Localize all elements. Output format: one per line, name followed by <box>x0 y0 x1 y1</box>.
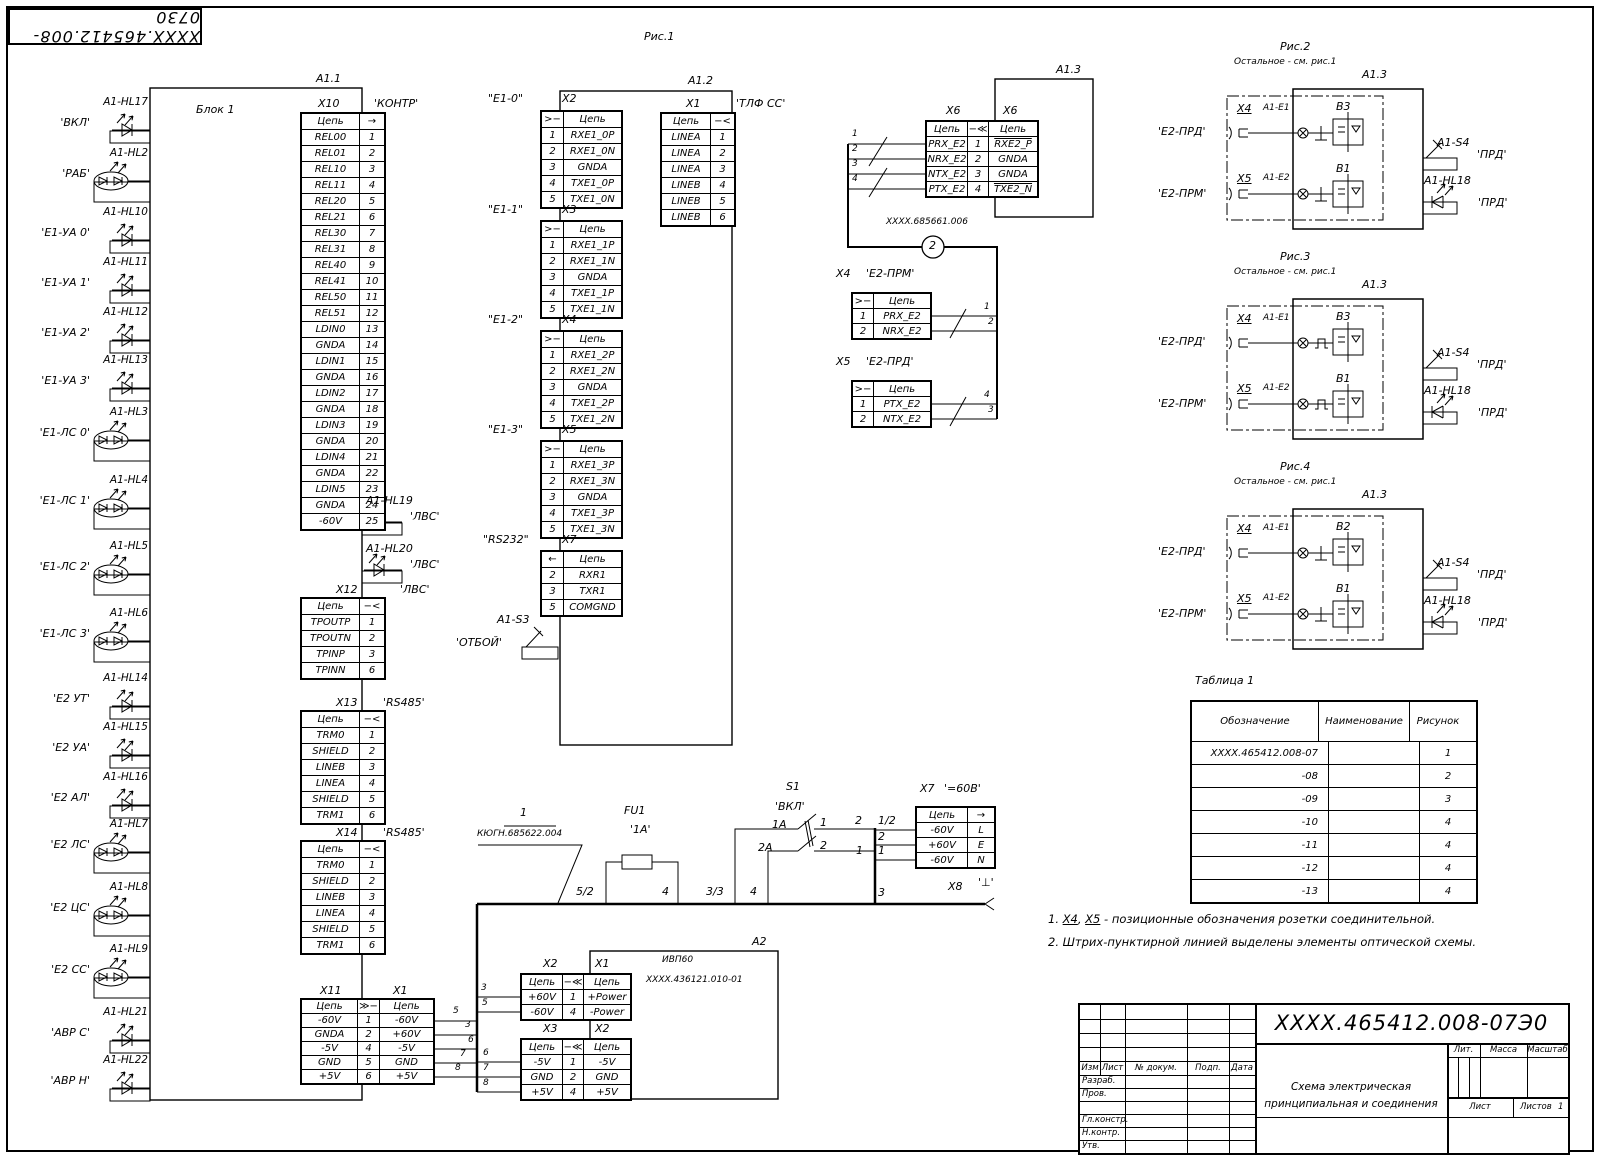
label-wires-bus-fu_out: 4 <box>662 885 669 898</box>
table-cell <box>1329 857 1420 879</box>
table-cell: 5 <box>358 1056 380 1069</box>
table-cell: −< <box>360 842 384 857</box>
table-row: LDIN217 <box>302 386 384 402</box>
table-row: >−Цепь <box>542 222 621 238</box>
table-cell: 2 <box>853 412 874 426</box>
fig2-b_bot: B1 <box>1336 162 1351 175</box>
table-row: Цепь≫−Цепь <box>302 1000 433 1014</box>
table-cell: REL00 <box>302 130 360 145</box>
table-cell: -60V <box>522 1005 563 1019</box>
label-right_leds-0-designator: A1-HL19 <box>366 494 413 507</box>
table-cell <box>1329 742 1420 764</box>
fig3-s4: A1-S4 <box>1437 346 1469 359</box>
label-tables-rs232-tag: "RS232" <box>483 533 529 546</box>
table-cell: E <box>968 838 994 852</box>
table-cell: ≫− <box>358 1000 380 1013</box>
table-row: 2RXE1_2N <box>542 364 621 380</box>
table-cell: RXR1 <box>564 568 621 583</box>
tb-listov-label: Листов <box>1520 1102 1552 1112</box>
table-row: Цепь→ <box>917 808 994 823</box>
table-cell: -08 <box>1192 765 1329 787</box>
table-cell: 4 <box>360 776 384 791</box>
indicator-designator: A1-HL7 <box>92 818 148 830</box>
table-row: 5TXE1_3N <box>542 522 621 537</box>
table-row: 1RXE1_1P <box>542 238 621 254</box>
table-row: -60VN <box>917 853 994 867</box>
label-wires-bus-n_left: 1 <box>856 844 863 857</box>
table-cell: 2 <box>358 1028 380 1041</box>
table-cell: 5 <box>542 522 564 537</box>
table-cell: 12 <box>360 306 384 321</box>
table-cell: -11 <box>1192 834 1329 856</box>
fig3-in_top: 'Е2-ПРД' <box>1158 335 1205 348</box>
table-cell: REL10 <box>302 162 360 177</box>
fig4-b_top: B2 <box>1336 520 1351 533</box>
table-cell: GNDA <box>302 370 360 385</box>
table-cell: 2 <box>563 1070 584 1084</box>
indicator-label: 'Е1-ЛС 0' <box>2 426 90 439</box>
table-row: GNDA22 <box>302 466 384 482</box>
table-cell: +Power <box>584 990 630 1004</box>
power-wires <box>433 814 994 1092</box>
table-row: REL216 <box>302 210 384 226</box>
table-row: >−Цепь <box>853 294 930 309</box>
table-x7-rs232: ←Цепь2RXR13TXR15COMGND <box>540 550 623 617</box>
table-cell: >− <box>542 222 564 237</box>
label-wires-x6-3: 4 <box>852 174 858 184</box>
table-cell: 5 <box>542 302 564 317</box>
table-cell: -60V <box>302 514 360 529</box>
table-cell: 2 <box>360 146 384 161</box>
table-row: TRM16 <box>302 938 384 953</box>
table-cell: LINEB <box>662 178 711 193</box>
table-x5-e2-prd: >−Цепь1PTX_E22NTX_E2 <box>851 380 932 428</box>
table-cell: GND <box>522 1070 563 1084</box>
indicator-label: 'Е2 СС' <box>2 963 90 976</box>
table-row: LINEA2 <box>662 146 734 162</box>
table-cell: SHIELD <box>302 874 360 889</box>
table-cell: 1 <box>563 1055 584 1069</box>
indicator-label: 'Е1-УА 0' <box>2 226 90 239</box>
label-x8-tag: '⊥' <box>978 876 994 889</box>
table-cell: GNDA <box>302 1028 358 1041</box>
indicator-designator: A1-HL13 <box>92 354 148 366</box>
table-row: -114 <box>1192 834 1476 857</box>
schematic-graphics <box>0 0 1600 1158</box>
table-row: LINEB6 <box>662 210 734 225</box>
indicator-label: 'ВКЛ' <box>2 116 90 129</box>
table-cell: LINEA <box>302 776 360 791</box>
indicator-label: 'АВР Н' <box>2 1074 90 1087</box>
table-cell: REL31 <box>302 242 360 257</box>
table-x6-x6: Цепь−≪ЦепьPRX_E21RXE2_PNRX_E22GNDANTX_E2… <box>925 120 1039 198</box>
table-cell: +5V <box>302 1070 358 1083</box>
table-cell: 2 <box>542 144 564 159</box>
table-row: 2RXE1_3N <box>542 474 621 490</box>
indicator-label: 'Е1-ЛС 3' <box>2 627 90 640</box>
table-row: 2RXE1_1N <box>542 254 621 270</box>
table-row: SHIELD2 <box>302 874 384 890</box>
label-wires-bus-n_right: 1 <box>878 844 885 857</box>
sheet-frame <box>7 7 1593 1151</box>
table-row: 4TXE1_2P <box>542 396 621 412</box>
table-cell: 2 <box>968 152 989 166</box>
table-row: LDIN421 <box>302 450 384 466</box>
table-cell: 1 <box>542 348 564 363</box>
fig4-title: Рис.4 <box>1280 460 1310 473</box>
table-cell: 3 <box>1420 788 1476 810</box>
table-row: GNDA18 <box>302 402 384 418</box>
table-row: Цепь→ <box>302 114 384 130</box>
label-tables-x6-des: X6 <box>946 104 961 117</box>
label-tables-e2prd-des: X5 <box>836 355 851 368</box>
table-cell: GNDA <box>989 167 1037 181</box>
label-blocks-a11-ref: A1.1 <box>316 72 341 85</box>
fig3-subtitle: Остальное - см. рис.1 <box>1234 267 1336 277</box>
table-cell: GNDA <box>302 466 360 481</box>
table-cell: COMGND <box>564 600 621 615</box>
table-cell: L <box>968 823 994 837</box>
fig2-hl18: A1-HL18 <box>1424 174 1471 187</box>
table-cell: 2 <box>542 254 564 269</box>
table-cell: 4 <box>542 286 564 301</box>
table-cell: GND <box>584 1070 630 1084</box>
table-cell: N <box>968 853 994 867</box>
table-cell: 4 <box>542 506 564 521</box>
table-cell: RXE1_3N <box>564 474 621 489</box>
table-row: 4TXE1_3P <box>542 506 621 522</box>
tb-col-ndoc: № докум. <box>1125 1063 1187 1073</box>
table-row: +60V1+Power <box>522 990 630 1005</box>
table-x7-60v: Цепь→-60VL+60VE-60VN <box>915 806 996 869</box>
table-cell: 3 <box>542 160 564 175</box>
table-cell: 3 <box>542 270 564 285</box>
indicator-designator: A1-HL9 <box>92 943 148 955</box>
led-a1-hl5 <box>94 555 150 595</box>
table-row: Цепь−< <box>662 114 734 130</box>
table-row: 5TXE1_1N <box>542 302 621 317</box>
table-cell: 2 <box>542 364 564 379</box>
indicator-designator: A1-HL21 <box>92 1006 148 1018</box>
label-tables-x7pwr-tag: '=60В' <box>944 782 981 795</box>
table-row: REL4110 <box>302 274 384 290</box>
table-row: PRX_E21RXE2_P <box>927 137 1037 152</box>
table-cell: SHIELD <box>302 744 360 759</box>
led-a1-hl3 <box>94 421 150 461</box>
label-wires-x11_right-3: 7 <box>483 1063 489 1073</box>
label-wires-bus-l_left: 2 <box>855 814 862 827</box>
indicator-label: 'Е1-УА 3' <box>2 374 90 387</box>
table-cell: TXE2_N <box>989 182 1037 196</box>
table-row: -082 <box>1192 765 1476 788</box>
table-row: Цепь−< <box>302 599 384 615</box>
led-a1-hl4 <box>94 489 150 529</box>
table-row: LDIN115 <box>302 354 384 370</box>
table-cell: ХХХХ.465412.008-07 <box>1192 742 1329 764</box>
tb-row-nkontr: Н.контр. <box>1082 1128 1120 1138</box>
fig4-in_top: 'Е2-ПРД' <box>1158 545 1205 558</box>
table-row: -134 <box>1192 880 1476 902</box>
table-cell: Цепь <box>302 842 360 857</box>
table-a2-x3-x2: Цепь−≪Цепь-5V1-5VGND2GND+5V4+5V <box>520 1038 632 1101</box>
table-cell: +60V <box>522 990 563 1004</box>
table-cell: PRX_E2 <box>874 309 930 323</box>
title-block: Изм Лист № докум. Подп. Дата Разраб. Про… <box>1078 1003 1570 1155</box>
table-row: REL409 <box>302 258 384 274</box>
table-row: REL318 <box>302 242 384 258</box>
table-cell: 1 <box>1420 742 1476 764</box>
table-row: -60VL <box>917 823 994 838</box>
label-wires-x6-1: 2 <box>852 144 858 154</box>
label-wires-x11_left-3: 7 <box>460 1049 466 1059</box>
table-cell: 5 <box>542 412 564 427</box>
table-cell: 4 <box>1420 811 1476 833</box>
label-tables-a2x3-des: X3 <box>543 1022 558 1035</box>
table-cell: 4 <box>1420 834 1476 856</box>
table-cell: -12 <box>1192 857 1329 879</box>
label-wires-x6-2: 3 <box>852 159 858 169</box>
note-1-x4: X4 <box>1063 912 1078 926</box>
table-row: Цепь−< <box>302 842 384 858</box>
indicator-designator: A1-HL3 <box>92 406 148 418</box>
table-cell: GNDA <box>302 498 360 513</box>
table-cell: -5V <box>522 1055 563 1069</box>
table-cell: 21 <box>360 450 384 465</box>
table-cell: LDIN2 <box>302 386 360 401</box>
table-row: NRX_E22GNDA <box>927 152 1037 167</box>
indicator-designator: A1-HL22 <box>92 1054 148 1066</box>
table-cell: LINEB <box>302 760 360 775</box>
table-cell: 2 <box>1420 765 1476 787</box>
table-cell: TXE1_1P <box>564 286 621 301</box>
label-switches-s3-label: 'ОТБОЙ' <box>456 636 502 649</box>
note-1: 1. X4, X5 - позиционные обозначения розе… <box>1048 912 1476 926</box>
fig3-x4_el: A1-E1 <box>1263 313 1290 323</box>
table-cell: LINEA <box>662 162 711 177</box>
led-a1-hl15 <box>110 739 150 768</box>
table-cell: -60V <box>380 1014 433 1027</box>
table-cell <box>1329 788 1420 810</box>
table-x11-x1: Цепь≫−Цепь-60V1-60VGNDA2+60V-5V4-5VGND5G… <box>300 998 435 1085</box>
switch-a1-s3 <box>522 627 558 659</box>
fig3-b_bot: B1 <box>1336 372 1351 385</box>
indicator-designator: A1-HL5 <box>92 540 148 552</box>
indicator-label: 'АВР С' <box>2 1026 90 1039</box>
note-2: 2. Штрих-пунктирной линией выделены элем… <box>1048 935 1476 949</box>
table-row: REL205 <box>302 194 384 210</box>
corner-stamp-text: ХХХХ.465412.008-0730 <box>10 8 200 46</box>
table-cell: REL01 <box>302 146 360 161</box>
label-wires-e2-3: 3 <box>988 405 994 415</box>
table-row: SHIELD5 <box>302 922 384 938</box>
table-cell: +60V <box>917 838 968 852</box>
indicator-label: 'Е2 ЛС' <box>2 838 90 851</box>
table-cell: 15 <box>360 354 384 369</box>
table-cell: Цепь <box>302 599 360 614</box>
note-1-x5: X5 <box>1085 912 1100 926</box>
label-switches-s1-label: 'ВКЛ' <box>775 800 805 813</box>
table-cell: -60V <box>917 853 968 867</box>
table-cell: −< <box>360 712 384 727</box>
table-x1-tlf: Цепь−<LINEA1LINEA2LINEA3LINEB4LINEB5LINE… <box>660 112 736 227</box>
table-cell: Цепь <box>584 1040 630 1054</box>
table-row: 1RXE1_0P <box>542 128 621 144</box>
table-row: LINEA4 <box>302 906 384 922</box>
table-cell: PRX_E2 <box>927 137 968 151</box>
table-cell: TRM1 <box>302 808 360 823</box>
table-cell: 3 <box>542 490 564 505</box>
table-row: 1RXE1_2P <box>542 348 621 364</box>
label-blocks-a12-ref: A1.2 <box>688 74 713 87</box>
table-cell: 4 <box>360 178 384 193</box>
fig3-s4_label: 'ПРД' <box>1477 358 1507 371</box>
table-cell: 11 <box>360 290 384 305</box>
indicator-label: 'Е2 АЛ' <box>2 791 90 804</box>
fig4-ref: A1.3 <box>1362 488 1387 501</box>
table-cell: 1 <box>360 130 384 145</box>
table-cell: 5 <box>711 194 734 209</box>
figure-3-coupler <box>1315 339 1328 409</box>
table-cell: Цепь <box>302 114 360 129</box>
table-row: 3GNDA <box>542 160 621 176</box>
table-cell: Цепь <box>380 1000 433 1013</box>
table-cell: NTX_E2 <box>927 167 968 181</box>
fig2-subtitle: Остальное - см. рис.1 <box>1234 57 1336 67</box>
table-cell: -5V <box>584 1055 630 1069</box>
fig2-in_bot: 'Е2-ПРМ' <box>1158 187 1206 200</box>
label-cables-c2_code: ХХХХ.685661.006 <box>886 217 968 227</box>
table-cell: 5 <box>360 194 384 209</box>
fig4-s4: A1-S4 <box>1437 556 1469 569</box>
indicator-label: 'РАБ' <box>2 167 90 180</box>
table-cell: 3 <box>360 647 384 662</box>
fig2-x5_el: A1-E2 <box>1263 173 1290 183</box>
fig4-x5_el: A1-E2 <box>1263 593 1290 603</box>
label-wires-e2-2: 4 <box>984 390 990 400</box>
fig2-s4_label: 'ПРД' <box>1477 148 1507 161</box>
indicator-designator: A1-HL6 <box>92 607 148 619</box>
indicator-designator: A1-HL15 <box>92 721 148 733</box>
table-row: 1RXE1_3P <box>542 458 621 474</box>
fig3-title: Рис.3 <box>1280 250 1310 263</box>
label-wires-bus-s1_c2: 2А <box>758 841 773 854</box>
table-cell: 3 <box>360 890 384 905</box>
label-table1-title: Таблица 1 <box>1195 674 1254 687</box>
led-a1-hl21 <box>110 1024 150 1053</box>
label-right_leds-0-label: 'ЛВС' <box>410 510 440 523</box>
table-cell: 3 <box>360 162 384 177</box>
label-tables-a2x2-des: X2 <box>543 957 558 970</box>
table-x12: Цепь−<TPOUTP1TPOUTN2TPINP3TPINN6 <box>300 597 386 680</box>
label-tables-e1_3-tag: "Е1-3" <box>488 423 523 436</box>
indicator-designator: A1-HL16 <box>92 771 148 783</box>
table-x4-e2-prm: >−Цепь1PRX_E22NRX_E2 <box>851 292 932 340</box>
fig2-ref: A1.3 <box>1362 68 1387 81</box>
table-cell: >− <box>542 332 564 347</box>
tb-lit-label: Лит. <box>1447 1045 1480 1055</box>
table-cell: GNDA <box>302 402 360 417</box>
table-cell: 5 <box>542 192 564 207</box>
label-blocks-a2-ref: A2 <box>752 935 767 948</box>
label-tables-x12-tag: 'ЛВС' <box>400 583 430 596</box>
tb-row-prov: Пров. <box>1082 1089 1107 1099</box>
label-tables-e1_0-tag: "Е1-0" <box>488 92 523 105</box>
table-cell: Цепь <box>584 975 630 989</box>
fig2-s4: A1-S4 <box>1437 136 1469 149</box>
label-tables-e2prm-des: X4 <box>836 267 851 280</box>
label-tables-e1_2-tag: "Е1-2" <box>488 313 523 326</box>
table-cell: 14 <box>360 338 384 353</box>
tb-row-glkonstr: Гл.констр. <box>1082 1115 1128 1125</box>
tb-col-list: Лист <box>1100 1063 1125 1073</box>
fig2-x4_el: A1-E1 <box>1263 103 1290 113</box>
table-cell: PTX_E2 <box>874 397 930 411</box>
table-row: GND5GND <box>302 1056 433 1070</box>
label-cables-c2_num: 2 <box>929 239 936 252</box>
indicator-label: 'Е2 ЦС' <box>2 901 90 914</box>
table-cell: RXE1_0P <box>564 128 621 143</box>
figure-4-coupler <box>1315 546 1327 621</box>
label-wires-x6-0: 1 <box>852 129 858 139</box>
table-cell: 6 <box>360 938 384 953</box>
table-cell: -5V <box>380 1042 433 1055</box>
table-row: TPINP3 <box>302 647 384 663</box>
table-cell: -10 <box>1192 811 1329 833</box>
table-row: -60V25 <box>302 514 384 529</box>
table-row: ОбозначениеНаименованиеРисунок <box>1192 702 1476 742</box>
table-cell: GNDA <box>564 380 621 395</box>
table-cell: >− <box>542 442 564 457</box>
table-cell: REL21 <box>302 210 360 225</box>
figure-2-coupler <box>1315 126 1327 201</box>
table-cell: 6 <box>360 808 384 823</box>
label-blocks-a11-name: Блок 1 <box>196 103 234 116</box>
table-row: LDIN013 <box>302 322 384 338</box>
table-cell: +5V <box>522 1085 563 1099</box>
table-cell: LDIN0 <box>302 322 360 337</box>
label-tables-a2x2-des2: X1 <box>595 957 610 970</box>
fig3-b_top: B3 <box>1336 310 1351 323</box>
label-tables-x13-des: X13 <box>336 696 358 709</box>
table-cell: REL50 <box>302 290 360 305</box>
label-switches-s1-fuse_rating: '1А' <box>630 823 651 836</box>
tb-listov-value: 1 <box>1558 1102 1563 1112</box>
table-row: +5V6+5V <box>302 1070 433 1083</box>
label-tables-rs232-des: X7 <box>562 533 577 546</box>
table-row: GNDA14 <box>302 338 384 354</box>
table-cell: RXE1_1N <box>564 254 621 269</box>
table-cell: Цепь <box>662 114 711 129</box>
table-cell: LINEA <box>662 130 711 145</box>
table-cell: RXE1_0N <box>564 144 621 159</box>
table-cell <box>1329 880 1420 902</box>
label-sheet-fig1: Рис.1 <box>644 30 674 43</box>
table-cell: 4 <box>563 1005 584 1019</box>
table-cell: −< <box>360 599 384 614</box>
table-cell: LINEB <box>662 210 711 225</box>
table-row: LINEA4 <box>302 776 384 792</box>
led-a1-hl17 <box>110 114 150 143</box>
table-cell: 4 <box>542 176 564 191</box>
table-x13: Цепь−<TRM01SHIELD2LINEB3LINEA4SHIELD5TRM… <box>300 710 386 825</box>
indicator-label: 'Е1-УА 2' <box>2 326 90 339</box>
table-cell: 16 <box>360 370 384 385</box>
table-cell: 4 <box>542 396 564 411</box>
fig3-ref: A1.3 <box>1362 278 1387 291</box>
label-tables-x14-tag: 'RS485' <box>383 826 425 839</box>
led-a1-hl22 <box>110 1072 150 1101</box>
table-cell: RXE2_P <box>989 137 1037 151</box>
